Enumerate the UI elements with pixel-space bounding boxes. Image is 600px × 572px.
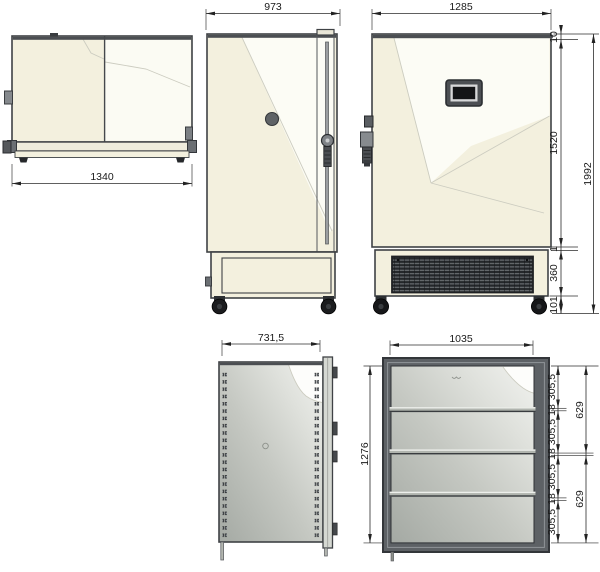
top-view xyxy=(3,33,197,187)
hinge-bracket xyxy=(333,451,337,462)
foot xyxy=(19,158,28,163)
dim-front-caster: 101 xyxy=(548,283,560,327)
side-view xyxy=(206,9,341,314)
caster-wheel xyxy=(212,296,227,314)
dim-interior-front-width: 1035 xyxy=(431,333,491,345)
interior-front-view xyxy=(364,341,599,562)
display-screen xyxy=(453,87,475,99)
ventilation-grille xyxy=(392,257,533,293)
caster-wheel xyxy=(321,296,336,314)
control-display xyxy=(446,80,482,106)
dim-front-door: 1520 xyxy=(548,121,560,165)
dim-side-width: 973 xyxy=(243,1,303,13)
side-base xyxy=(211,252,335,298)
lock-valve xyxy=(361,132,374,167)
shelf-mounting-holes-left xyxy=(223,371,227,539)
hinge-bracket xyxy=(333,523,337,535)
hinge-bracket xyxy=(333,367,337,378)
door-rail xyxy=(10,142,194,151)
front-view xyxy=(361,9,600,314)
dim-front-lid: 10 xyxy=(548,15,560,59)
dim-front-total: 1992 xyxy=(582,152,594,196)
drawing-geometry xyxy=(0,0,600,572)
dim-span-1: 629 xyxy=(574,477,586,521)
dim-shelf-6: 305,5 xyxy=(546,500,558,544)
port-hole xyxy=(266,113,279,126)
lock-block xyxy=(186,127,193,140)
dim-interior-side-width: 731,5 xyxy=(241,332,301,344)
shelf xyxy=(390,449,536,454)
dim-top-width: 1340 xyxy=(72,171,132,183)
leg xyxy=(325,548,328,556)
access-port xyxy=(365,116,374,127)
shelf xyxy=(390,407,536,412)
shelf xyxy=(390,492,536,497)
top-hinge-tab xyxy=(50,33,58,37)
foot xyxy=(176,158,185,163)
caster-wheel xyxy=(531,296,546,314)
shelf-mounting-holes-right xyxy=(315,371,319,539)
side-port xyxy=(5,91,13,104)
dim-front-width: 1285 xyxy=(431,1,491,13)
dim-span-0: 629 xyxy=(574,388,586,432)
interior-side-view xyxy=(219,340,337,560)
caster-wheel xyxy=(373,296,388,314)
dim-interior-front-height: 1276 xyxy=(359,432,371,476)
leg xyxy=(221,542,224,560)
hinge-block xyxy=(3,141,11,153)
technical-drawing-canvas: 1340 973 1285 10 1520 1 360 101 1992 731… xyxy=(0,0,600,572)
chamber-interior xyxy=(391,366,534,543)
leg xyxy=(391,552,394,561)
hinge-bracket xyxy=(333,422,337,435)
